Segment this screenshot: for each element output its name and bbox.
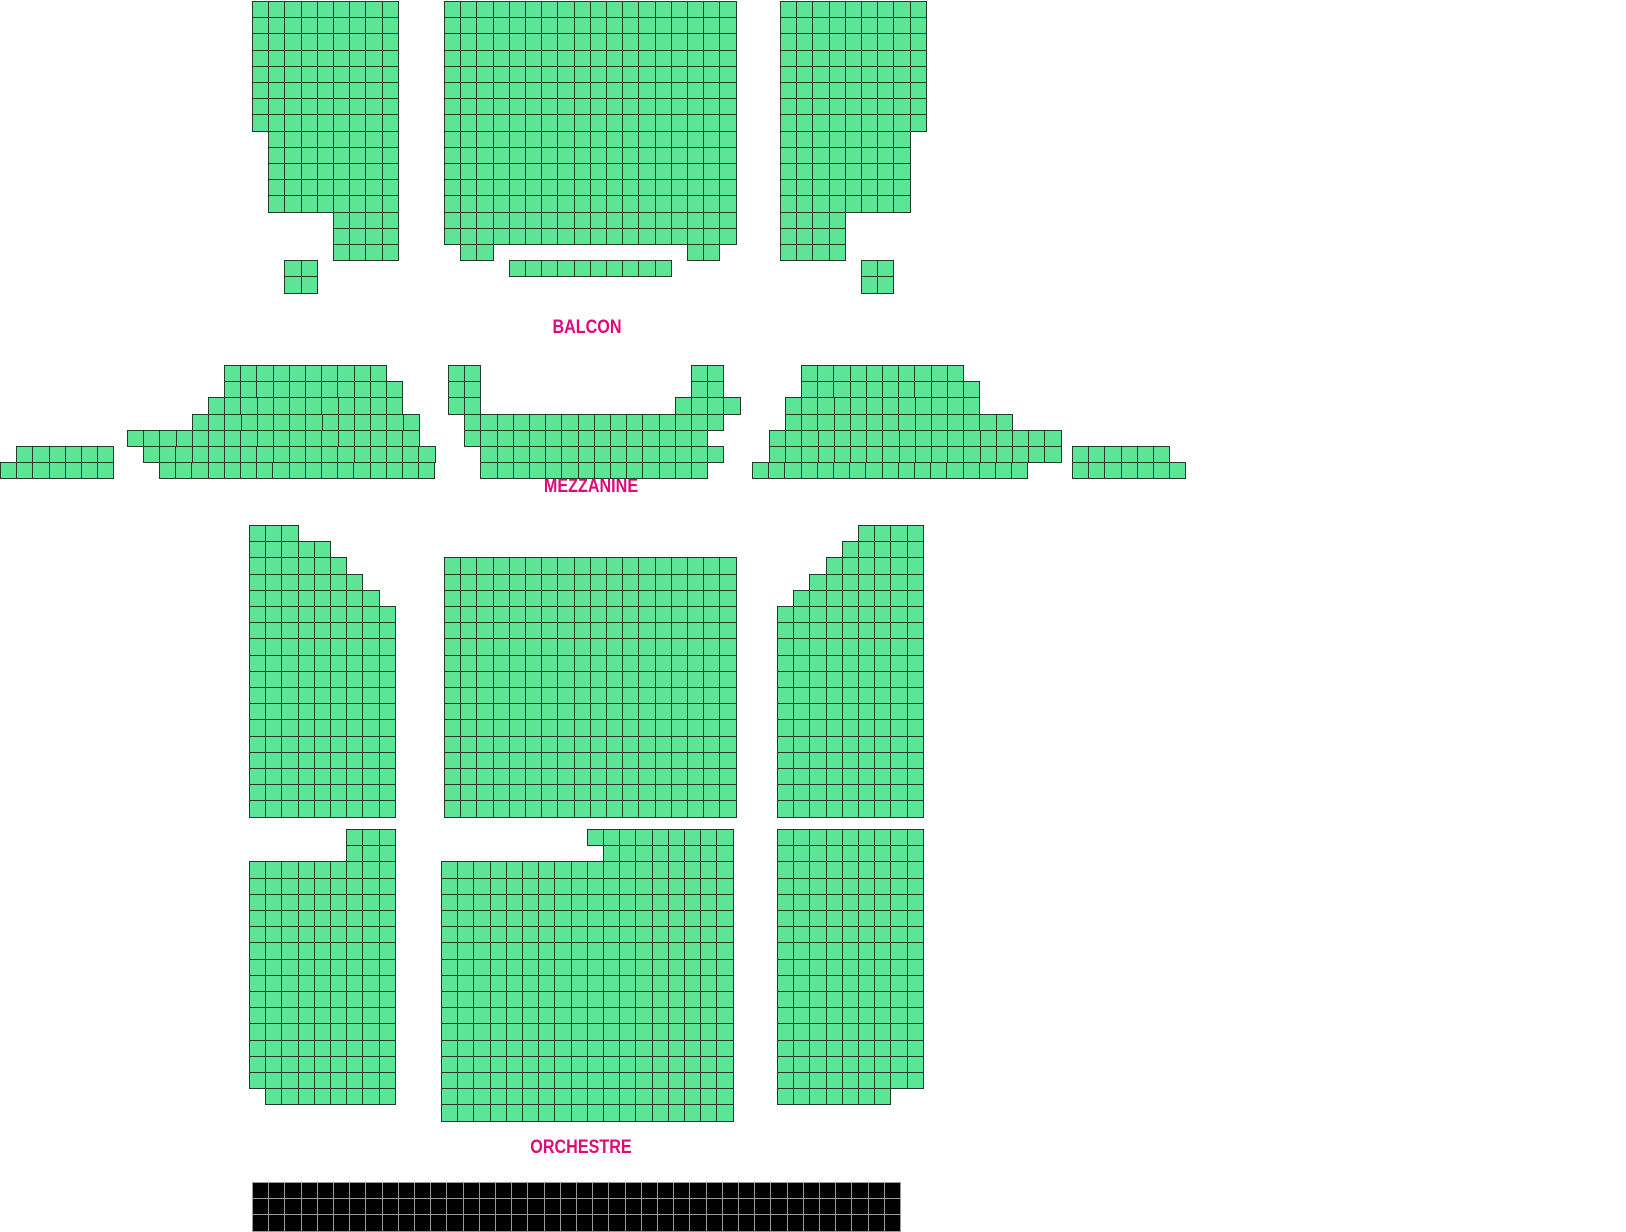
stage-cell bbox=[608, 1198, 625, 1215]
stage-cell bbox=[333, 1198, 350, 1215]
stage-cell bbox=[657, 1182, 674, 1199]
stage-cell bbox=[495, 1182, 512, 1199]
stage-cell bbox=[754, 1182, 771, 1199]
stage-cell bbox=[722, 1198, 739, 1215]
stage-cell bbox=[317, 1214, 334, 1231]
stage-cell bbox=[625, 1182, 642, 1199]
stage-cell bbox=[544, 1198, 561, 1215]
stage-cell bbox=[333, 1182, 350, 1199]
stage-cell bbox=[884, 1214, 901, 1231]
stage-cell bbox=[560, 1182, 577, 1199]
stage-cell bbox=[608, 1182, 625, 1199]
stage-cell bbox=[641, 1198, 658, 1215]
stage-bar bbox=[0, 0, 1626, 1220]
stage-cell bbox=[511, 1182, 528, 1199]
stage-cell bbox=[527, 1214, 544, 1231]
stage-cell bbox=[819, 1182, 836, 1199]
stage-cell bbox=[382, 1182, 399, 1199]
stage-cell bbox=[349, 1214, 366, 1231]
stage-cell bbox=[770, 1198, 787, 1215]
stage-cell bbox=[576, 1214, 593, 1231]
stage-cell bbox=[592, 1198, 609, 1215]
stage-cell bbox=[268, 1198, 285, 1215]
stage-cell bbox=[252, 1198, 269, 1215]
stage-cell bbox=[819, 1214, 836, 1231]
stage-cell bbox=[787, 1214, 804, 1231]
stage-cell bbox=[738, 1214, 755, 1231]
stage-cell bbox=[544, 1182, 561, 1199]
stage-cell bbox=[819, 1198, 836, 1215]
stage-cell bbox=[560, 1214, 577, 1231]
stage-cell bbox=[657, 1214, 674, 1231]
stage-cell bbox=[446, 1182, 463, 1199]
stage-cell bbox=[495, 1214, 512, 1231]
stage-cell bbox=[301, 1198, 318, 1215]
stage-cell bbox=[868, 1198, 885, 1215]
stage-cell bbox=[268, 1214, 285, 1231]
stage-cell bbox=[365, 1198, 382, 1215]
stage-cell bbox=[576, 1198, 593, 1215]
stage-cell bbox=[317, 1198, 334, 1215]
stage-cell bbox=[641, 1182, 658, 1199]
stage-cell bbox=[673, 1214, 690, 1231]
stage-cell bbox=[770, 1214, 787, 1231]
stage-cell bbox=[608, 1214, 625, 1231]
stage-cell bbox=[706, 1198, 723, 1215]
stage-cell bbox=[835, 1198, 852, 1215]
theater-seat-map: BALCON MEZZANINE ORCHESTRE bbox=[0, 0, 1626, 1220]
stage-cell bbox=[527, 1182, 544, 1199]
stage-cell bbox=[317, 1182, 334, 1199]
stage-cell bbox=[738, 1198, 755, 1215]
stage-cell bbox=[414, 1182, 431, 1199]
stage-cell bbox=[527, 1198, 544, 1215]
stage-cell bbox=[268, 1182, 285, 1199]
stage-cell bbox=[430, 1198, 447, 1215]
stage-cell bbox=[868, 1214, 885, 1231]
stage-cell bbox=[673, 1182, 690, 1199]
stage-cell bbox=[625, 1214, 642, 1231]
stage-cell bbox=[835, 1182, 852, 1199]
stage-cell bbox=[333, 1214, 350, 1231]
stage-cell bbox=[301, 1182, 318, 1199]
stage-cell bbox=[284, 1214, 301, 1231]
stage-cell bbox=[754, 1214, 771, 1231]
stage-cell bbox=[689, 1182, 706, 1199]
stage-cell bbox=[738, 1182, 755, 1199]
stage-cell bbox=[284, 1182, 301, 1199]
stage-cell bbox=[446, 1198, 463, 1215]
stage-cell bbox=[511, 1198, 528, 1215]
stage-cell bbox=[722, 1214, 739, 1231]
stage-cell bbox=[382, 1198, 399, 1215]
stage-cell bbox=[511, 1214, 528, 1231]
stage-cell bbox=[284, 1198, 301, 1215]
stage-cell bbox=[689, 1198, 706, 1215]
stage-cell bbox=[365, 1214, 382, 1231]
stage-cell bbox=[884, 1198, 901, 1215]
stage-cell bbox=[576, 1182, 593, 1199]
stage-cell bbox=[770, 1182, 787, 1199]
stage-cell bbox=[430, 1182, 447, 1199]
stage-cell bbox=[463, 1182, 480, 1199]
stage-cell bbox=[868, 1182, 885, 1199]
stage-cell bbox=[884, 1182, 901, 1199]
stage-cell bbox=[657, 1198, 674, 1215]
stage-cell bbox=[349, 1182, 366, 1199]
stage-cell bbox=[787, 1198, 804, 1215]
stage-cell bbox=[560, 1198, 577, 1215]
stage-cell bbox=[479, 1214, 496, 1231]
stage-cell bbox=[544, 1214, 561, 1231]
stage-cell bbox=[592, 1214, 609, 1231]
stage-cell bbox=[641, 1214, 658, 1231]
stage-cell bbox=[754, 1198, 771, 1215]
stage-cell bbox=[479, 1198, 496, 1215]
stage-cell bbox=[398, 1214, 415, 1231]
stage-cell bbox=[463, 1198, 480, 1215]
stage-cell bbox=[706, 1182, 723, 1199]
stage-cell bbox=[835, 1214, 852, 1231]
stage-cell bbox=[673, 1198, 690, 1215]
stage-cell bbox=[706, 1214, 723, 1231]
stage-cell bbox=[787, 1182, 804, 1199]
stage-cell bbox=[446, 1214, 463, 1231]
stage-cell bbox=[803, 1198, 820, 1215]
stage-cell bbox=[803, 1182, 820, 1199]
stage-cell bbox=[463, 1214, 480, 1231]
stage-cell bbox=[365, 1182, 382, 1199]
stage-cell bbox=[625, 1198, 642, 1215]
stage-cell bbox=[689, 1214, 706, 1231]
stage-cell bbox=[398, 1198, 415, 1215]
stage-cell bbox=[349, 1198, 366, 1215]
stage-cell bbox=[382, 1214, 399, 1231]
stage-cell bbox=[430, 1214, 447, 1231]
stage-cell bbox=[479, 1182, 496, 1199]
stage-cell bbox=[414, 1198, 431, 1215]
stage-cell bbox=[252, 1214, 269, 1231]
stage-cell bbox=[851, 1214, 868, 1231]
stage-cell bbox=[398, 1182, 415, 1199]
stage-cell bbox=[803, 1214, 820, 1231]
stage-cell bbox=[851, 1182, 868, 1199]
stage-cell bbox=[851, 1198, 868, 1215]
stage-cell bbox=[252, 1182, 269, 1199]
stage-cell bbox=[495, 1198, 512, 1215]
stage-cell bbox=[722, 1182, 739, 1199]
stage-cell bbox=[414, 1214, 431, 1231]
stage-cell bbox=[301, 1214, 318, 1231]
stage-cell bbox=[592, 1182, 609, 1199]
